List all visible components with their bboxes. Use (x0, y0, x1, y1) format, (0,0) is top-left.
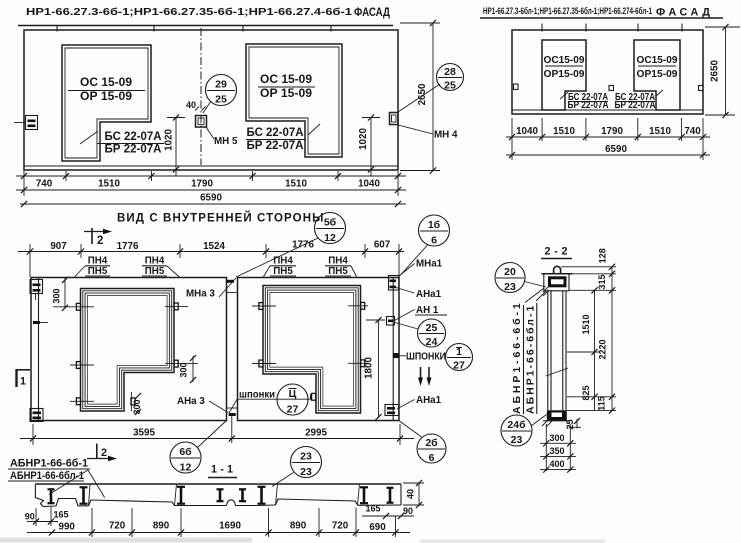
svg-text:27: 27 (287, 404, 299, 416)
svg-text:23: 23 (300, 451, 312, 463)
svg-text:1790: 1790 (601, 126, 623, 137)
svg-text:990: 990 (59, 522, 76, 533)
svg-text:40: 40 (186, 100, 196, 110)
svg-text:БР 22-07А: БР 22-07А (568, 100, 609, 111)
svg-text:1040: 1040 (358, 179, 380, 190)
svg-text:40: 40 (406, 489, 416, 499)
svg-text:1510: 1510 (553, 126, 575, 137)
svg-text:2220: 2220 (598, 339, 608, 359)
svg-text:ОС 15-09: ОС 15-09 (260, 74, 312, 86)
svg-text:24б: 24б (507, 419, 526, 431)
svg-text:165: 165 (53, 510, 68, 520)
svg-text:АБНР1-66-6бл-1: АБНР1-66-6бл-1 (525, 304, 537, 414)
svg-text:29: 29 (215, 79, 227, 91)
svg-text:ФАСАД: ФАСАД (656, 7, 713, 19)
svg-text:1776: 1776 (117, 241, 139, 252)
svg-text:ПН5: ПН5 (273, 266, 293, 277)
svg-text:1510: 1510 (581, 314, 591, 334)
svg-text:МН 5: МН 5 (214, 136, 238, 147)
svg-text:1524: 1524 (203, 241, 225, 252)
svg-text:12: 12 (324, 232, 336, 244)
svg-text:1б: 1б (428, 219, 441, 231)
svg-text:ПН5: ПН5 (328, 266, 348, 277)
svg-text:3595: 3595 (133, 428, 155, 439)
svg-text:ФАСАД: ФАСАД (354, 7, 390, 19)
svg-text:825: 825 (581, 385, 591, 400)
svg-text:БС 22-07А: БС 22-07А (105, 131, 162, 143)
svg-text:ОР15-09: ОР15-09 (544, 68, 585, 80)
svg-text:90: 90 (403, 506, 413, 516)
svg-text:23: 23 (504, 281, 516, 293)
svg-text:25: 25 (444, 80, 456, 92)
svg-text:ОС 15-09: ОС 15-09 (80, 77, 132, 89)
svg-text:5б: 5б (324, 217, 337, 229)
svg-text:128: 128 (598, 248, 608, 263)
svg-text:МНа 3: МНа 3 (186, 289, 215, 300)
svg-text:300: 300 (52, 288, 62, 303)
svg-text:БР 22-07А: БР 22-07А (247, 140, 304, 152)
svg-text:740: 740 (36, 179, 53, 190)
svg-text:740: 740 (684, 126, 701, 137)
svg-text:НР1-66.27.3-6бл-1;НР1-66.27.35: НР1-66.27.3-6бл-1;НР1-66.27.35-6бл-1;НР1… (483, 6, 652, 16)
svg-text:МНа1: МНа1 (416, 259, 443, 270)
svg-text:АН 1: АН 1 (416, 305, 439, 316)
svg-text:28: 28 (444, 66, 456, 78)
svg-text:2650: 2650 (710, 60, 721, 82)
svg-text:23: 23 (300, 466, 312, 478)
svg-text:БР 22-07А: БР 22-07А (105, 144, 162, 156)
svg-text:300: 300 (179, 362, 189, 377)
svg-text:1020: 1020 (358, 128, 369, 150)
svg-text:АНа 3: АНа 3 (177, 396, 205, 407)
svg-text:1-1: 1-1 (211, 464, 233, 476)
svg-text:1510: 1510 (98, 179, 120, 190)
svg-text:ВИД С ВНУТРЕННЕЙ СТОРОНЫ: ВИД С ВНУТРЕННЕЙ СТОРОНЫ (117, 212, 324, 225)
svg-text:1510: 1510 (285, 179, 307, 190)
svg-text:1800: 1800 (364, 357, 375, 379)
svg-text:АБНР1-66-6бл-1: АБНР1-66-6бл-1 (10, 470, 84, 482)
svg-text:23: 23 (511, 434, 523, 446)
svg-text:165: 165 (365, 504, 380, 514)
svg-text:24: 24 (426, 336, 438, 348)
svg-text:ОС15-09: ОС15-09 (637, 54, 678, 66)
svg-text:6: 6 (429, 452, 435, 464)
svg-text:2650: 2650 (417, 83, 428, 105)
svg-text:6б: 6б (179, 446, 192, 458)
svg-text:Ц: Ц (289, 388, 297, 400)
svg-text:ОР 15-09: ОР 15-09 (260, 88, 312, 100)
svg-text:БС 22-07А: БС 22-07А (247, 127, 304, 139)
svg-text:115: 115 (597, 396, 607, 411)
svg-text:ПН5: ПН5 (88, 266, 108, 277)
svg-text:НР1-66.27.3-6б-1;НР1-66.27.35-: НР1-66.27.3-6б-1;НР1-66.27.35-6б-1;НР1-6… (26, 7, 353, 18)
svg-text:90: 90 (25, 512, 35, 522)
svg-text:1020: 1020 (164, 129, 175, 151)
svg-text:2-2: 2-2 (545, 246, 568, 258)
svg-text:1040: 1040 (516, 126, 538, 137)
svg-text:1: 1 (20, 376, 26, 388)
svg-text:2: 2 (97, 235, 103, 247)
svg-text:315: 315 (597, 274, 607, 289)
svg-text:АБНР1-66-6б-1: АБНР1-66-6б-1 (10, 458, 88, 470)
svg-text:2995: 2995 (305, 428, 327, 439)
svg-text:МН 4: МН 4 (434, 130, 458, 141)
svg-text:27: 27 (453, 360, 465, 372)
svg-text:690: 690 (369, 522, 386, 533)
svg-text:25: 25 (215, 94, 227, 106)
svg-text:ШПОНКИ: ШПОНКИ (406, 352, 446, 363)
svg-text:907: 907 (50, 241, 67, 252)
svg-text:1776: 1776 (292, 240, 314, 251)
svg-text:400: 400 (549, 459, 564, 469)
svg-text:890: 890 (153, 521, 170, 532)
svg-text:1510: 1510 (649, 126, 671, 137)
svg-text:12: 12 (180, 462, 192, 474)
svg-text:АНа1: АНа1 (416, 289, 442, 300)
svg-text:ОР 15-09: ОР 15-09 (80, 91, 132, 103)
svg-text:720: 720 (332, 521, 349, 532)
svg-text:6590: 6590 (605, 144, 627, 155)
svg-text:6: 6 (431, 235, 437, 247)
svg-text:БР 22-07А: БР 22-07А (615, 100, 656, 111)
svg-text:607: 607 (374, 240, 391, 251)
svg-text:350: 350 (549, 446, 564, 456)
svg-text:300: 300 (549, 433, 564, 443)
svg-text:2б: 2б (425, 437, 438, 449)
svg-text:2: 2 (101, 447, 107, 459)
svg-text:АНа1: АНа1 (416, 395, 442, 406)
svg-text:ОС15-09: ОС15-09 (544, 54, 585, 66)
svg-text:ПН5: ПН5 (145, 266, 165, 277)
svg-text:25: 25 (426, 322, 438, 334)
svg-text:20: 20 (504, 266, 516, 278)
svg-text:890: 890 (290, 521, 307, 532)
svg-text:300: 300 (132, 399, 142, 414)
svg-text:АБНР1-66-6б-1: АБНР1-66-6б-1 (511, 300, 523, 414)
svg-text:720: 720 (109, 521, 126, 532)
svg-text:1790: 1790 (191, 179, 213, 190)
svg-text:6590: 6590 (200, 193, 222, 204)
svg-text:1690: 1690 (219, 521, 241, 532)
svg-text:ОР15-09: ОР15-09 (637, 68, 678, 80)
